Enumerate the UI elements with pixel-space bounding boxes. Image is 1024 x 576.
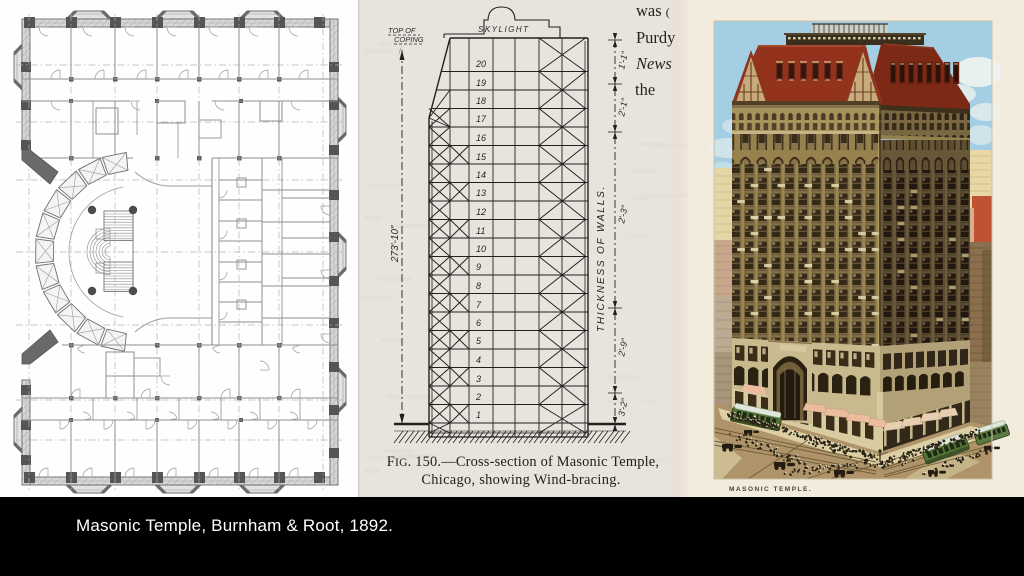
- svg-text:2′-9″: 2′-9″: [616, 337, 630, 358]
- svg-text:the: the: [635, 80, 655, 99]
- svg-text:COPING: COPING: [394, 35, 424, 44]
- svg-text:11: 11: [476, 226, 485, 236]
- svg-text:9: 9: [476, 262, 481, 272]
- svg-text:1′-1″: 1′-1″: [616, 50, 630, 70]
- svg-text:Purdy: Purdy: [636, 28, 676, 47]
- svg-text:7: 7: [476, 300, 482, 310]
- svg-text:2: 2: [475, 392, 481, 402]
- svg-text:15: 15: [476, 152, 487, 162]
- svg-text:16: 16: [476, 133, 486, 143]
- svg-text:10: 10: [476, 244, 486, 254]
- svg-text:MASONIC TEMPLE.: MASONIC TEMPLE.: [729, 486, 812, 493]
- svg-text:8: 8: [476, 281, 481, 291]
- svg-text:3′-2″: 3′-2″: [616, 397, 630, 417]
- svg-text:was (: was (: [636, 1, 670, 20]
- svg-text:19: 19: [476, 78, 486, 88]
- svg-text:TOP OF: TOP OF: [388, 26, 416, 35]
- svg-text:18: 18: [476, 96, 486, 106]
- svg-text:Chicago, showing Wind-bracing.: Chicago, showing Wind-bracing.: [421, 472, 620, 488]
- svg-text:SKYLIGHT: SKYLIGHT: [478, 25, 530, 34]
- svg-text:News: News: [635, 54, 672, 73]
- svg-text:THICKNESS OF WALLS.: THICKNESS OF WALLS.: [596, 185, 607, 332]
- svg-text:17: 17: [476, 114, 487, 124]
- svg-text:1: 1: [476, 410, 481, 420]
- svg-text:FIG. 150.—Cross-section of Mas: FIG. 150.—Cross-section of Masonic Templ…: [387, 454, 659, 470]
- svg-text:14: 14: [476, 170, 486, 180]
- svg-text:6: 6: [476, 318, 481, 328]
- svg-text:2′-3″: 2′-3″: [616, 204, 630, 225]
- svg-text:4: 4: [476, 355, 481, 365]
- svg-text:12: 12: [476, 207, 486, 217]
- svg-text:3: 3: [476, 374, 481, 384]
- svg-text:13: 13: [476, 188, 486, 198]
- svg-text:2′-1″: 2′-1″: [616, 97, 630, 118]
- svg-text:5: 5: [476, 336, 482, 346]
- svg-text:20: 20: [475, 59, 486, 69]
- svg-text:273′-10″: 273′-10″: [390, 225, 401, 263]
